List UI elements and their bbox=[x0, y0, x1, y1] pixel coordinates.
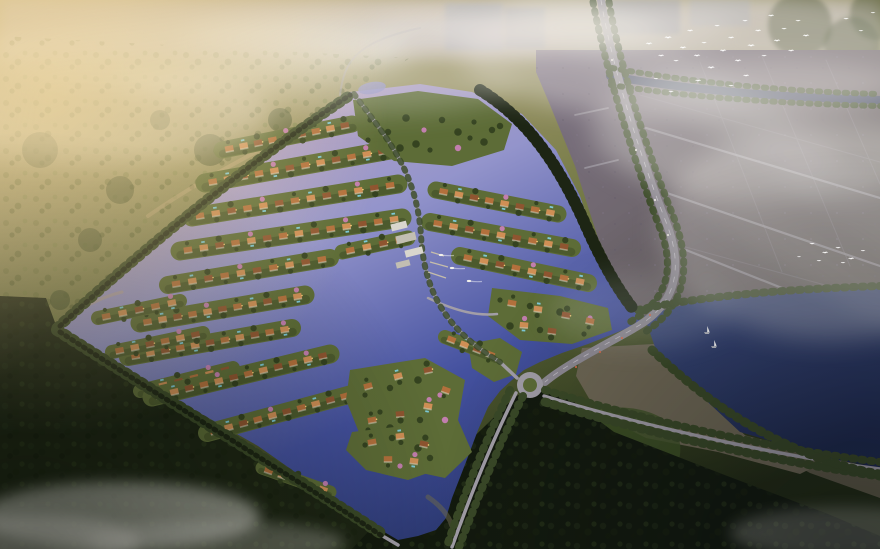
vignette-bottom-right bbox=[0, 0, 880, 549]
scene-svg bbox=[0, 0, 880, 549]
aerial-masterplan-render bbox=[0, 0, 880, 549]
